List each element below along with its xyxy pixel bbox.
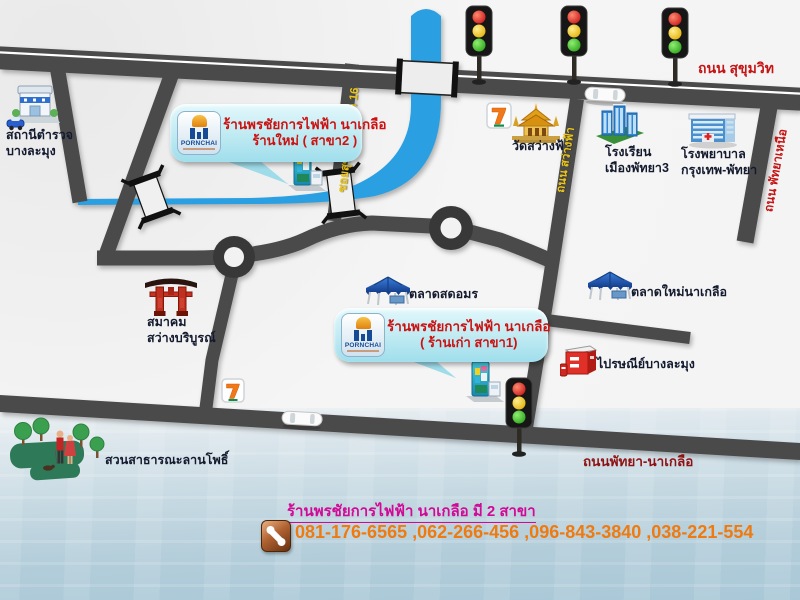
police-station-icon bbox=[6, 80, 60, 132]
shop-old-branch-icon bbox=[462, 356, 506, 404]
roundabout-east bbox=[429, 206, 473, 250]
market-new-icon bbox=[586, 269, 634, 303]
traffic-light-2 bbox=[560, 5, 588, 87]
police-station-label: สถานีตำรวจบางละมุง bbox=[6, 127, 73, 160]
traffic-light-1 bbox=[465, 5, 493, 87]
shrine-label: สมาคมสว่างบริบูรณ์ bbox=[147, 314, 216, 347]
park-label: สวนสาธารณะลานโพธิ์ bbox=[105, 452, 228, 468]
callout-old-branch: PORNCHAI ร้านพรชัยการไฟฟ้า นาเกลือ ( ร้า… bbox=[334, 308, 548, 362]
bridge-sukhumvit bbox=[395, 58, 459, 97]
market-amon-label: ตลาดสดอมร bbox=[409, 286, 478, 302]
pornchai-logo: PORNCHAI bbox=[177, 111, 221, 155]
callout-new-branch-line2: ร้านใหม่ ( สาขา2 ) bbox=[223, 133, 387, 150]
road-middle-curve bbox=[97, 223, 556, 263]
pornchai-logo-text: PORNCHAI bbox=[181, 140, 217, 147]
seven-eleven-2-icon bbox=[221, 378, 245, 404]
callout-old-branch-line2: ( ร้านเก่า สาขา1) bbox=[387, 335, 551, 352]
pornchai-logo-mark bbox=[190, 128, 208, 139]
seven-eleven-icon bbox=[486, 102, 512, 130]
roundabout-west bbox=[213, 236, 255, 278]
shrine-torii-icon bbox=[143, 273, 199, 319]
school-label: โรงเรียนเมืองพัทยา3 bbox=[605, 144, 669, 177]
park-icon bbox=[8, 412, 113, 492]
traffic-light-3 bbox=[661, 7, 689, 89]
footer-title: ร้านพรชัยการไฟฟ้า นาเกลือ มี 2 สาขา bbox=[287, 499, 536, 523]
pornchai-logo-2: PORNCHAI bbox=[341, 313, 385, 357]
post-office-icon bbox=[560, 342, 600, 382]
phone-icon bbox=[261, 520, 291, 552]
market-new-label: ตลาดใหม่นาเกลือ bbox=[631, 284, 727, 300]
label-pattaya-naklua-road: ถนนพัทยา-นาเกลือ bbox=[583, 450, 693, 472]
callout-new-branch-line1: ร้านพรชัยการไฟฟ้า นาเกลือ bbox=[223, 116, 387, 134]
pornchai-logo-2-lamp bbox=[356, 317, 371, 329]
pornchai-logo-2-text: PORNCHAI bbox=[345, 342, 381, 349]
pornchai-logo-2-mark bbox=[354, 330, 372, 341]
phone-numbers: 081-176-6565 ,062-266-456 ,096-843-3840 … bbox=[295, 522, 753, 543]
callout-new-branch: PORNCHAI ร้านพรชัยการไฟฟ้า นาเกลือ ร้านใ… bbox=[170, 104, 362, 162]
road-pattaya-naklua bbox=[0, 403, 800, 452]
pornchai-logo-subline bbox=[183, 148, 216, 150]
hospital-icon bbox=[686, 110, 740, 150]
car-bottom-icon bbox=[280, 409, 325, 431]
school-icon bbox=[596, 102, 644, 146]
label-sukhumvit-road: ถนน สุขุมวิท bbox=[698, 58, 774, 80]
callout-old-branch-line1: ร้านพรชัยการไฟฟ้า นาเกลือ bbox=[387, 318, 551, 336]
traffic-light-4 bbox=[505, 377, 533, 459]
road-branch-east bbox=[546, 320, 690, 338]
pornchai-logo-2-subline bbox=[347, 350, 380, 352]
post-office-label: ไปรษณีย์บางละมุง bbox=[597, 356, 695, 372]
hospital-label: โรงพยาบาลกรุงเทพ-พัทยา bbox=[681, 146, 757, 179]
market-amon-icon bbox=[364, 274, 412, 308]
pornchai-logo-lamp bbox=[192, 115, 207, 127]
